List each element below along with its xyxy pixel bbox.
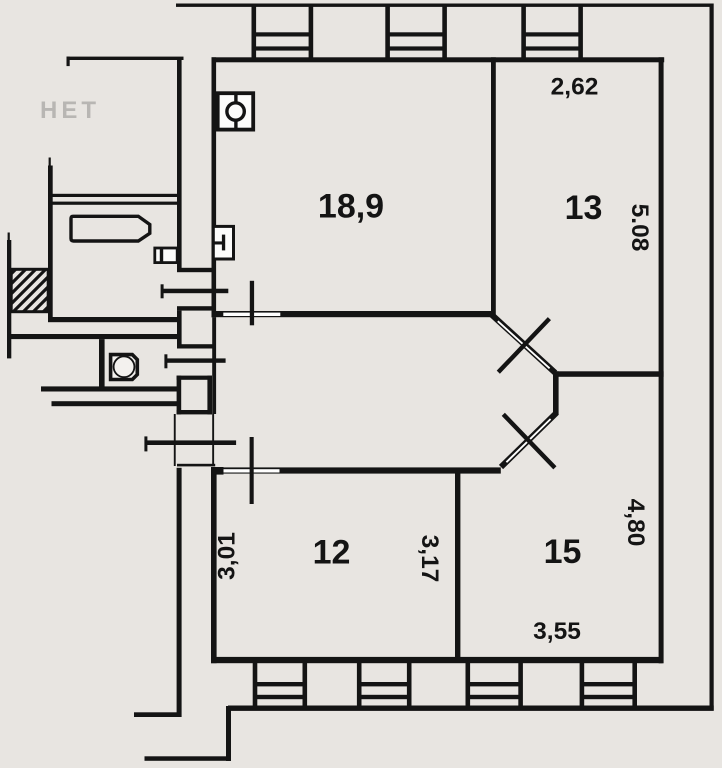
svg-text:4,80: 4,80 — [622, 499, 649, 547]
svg-text:3,55: 3,55 — [533, 618, 581, 645]
svg-text:2,62: 2,62 — [551, 74, 599, 101]
svg-text:3,17: 3,17 — [416, 535, 443, 583]
svg-text:15: 15 — [544, 533, 582, 571]
svg-text:НЕТ: НЕТ — [40, 97, 100, 124]
svg-text:5.08: 5.08 — [626, 204, 653, 252]
svg-text:18,9: 18,9 — [318, 188, 384, 226]
svg-text:3,01: 3,01 — [214, 532, 241, 580]
svg-text:12: 12 — [313, 534, 351, 572]
svg-text:13: 13 — [565, 189, 603, 227]
